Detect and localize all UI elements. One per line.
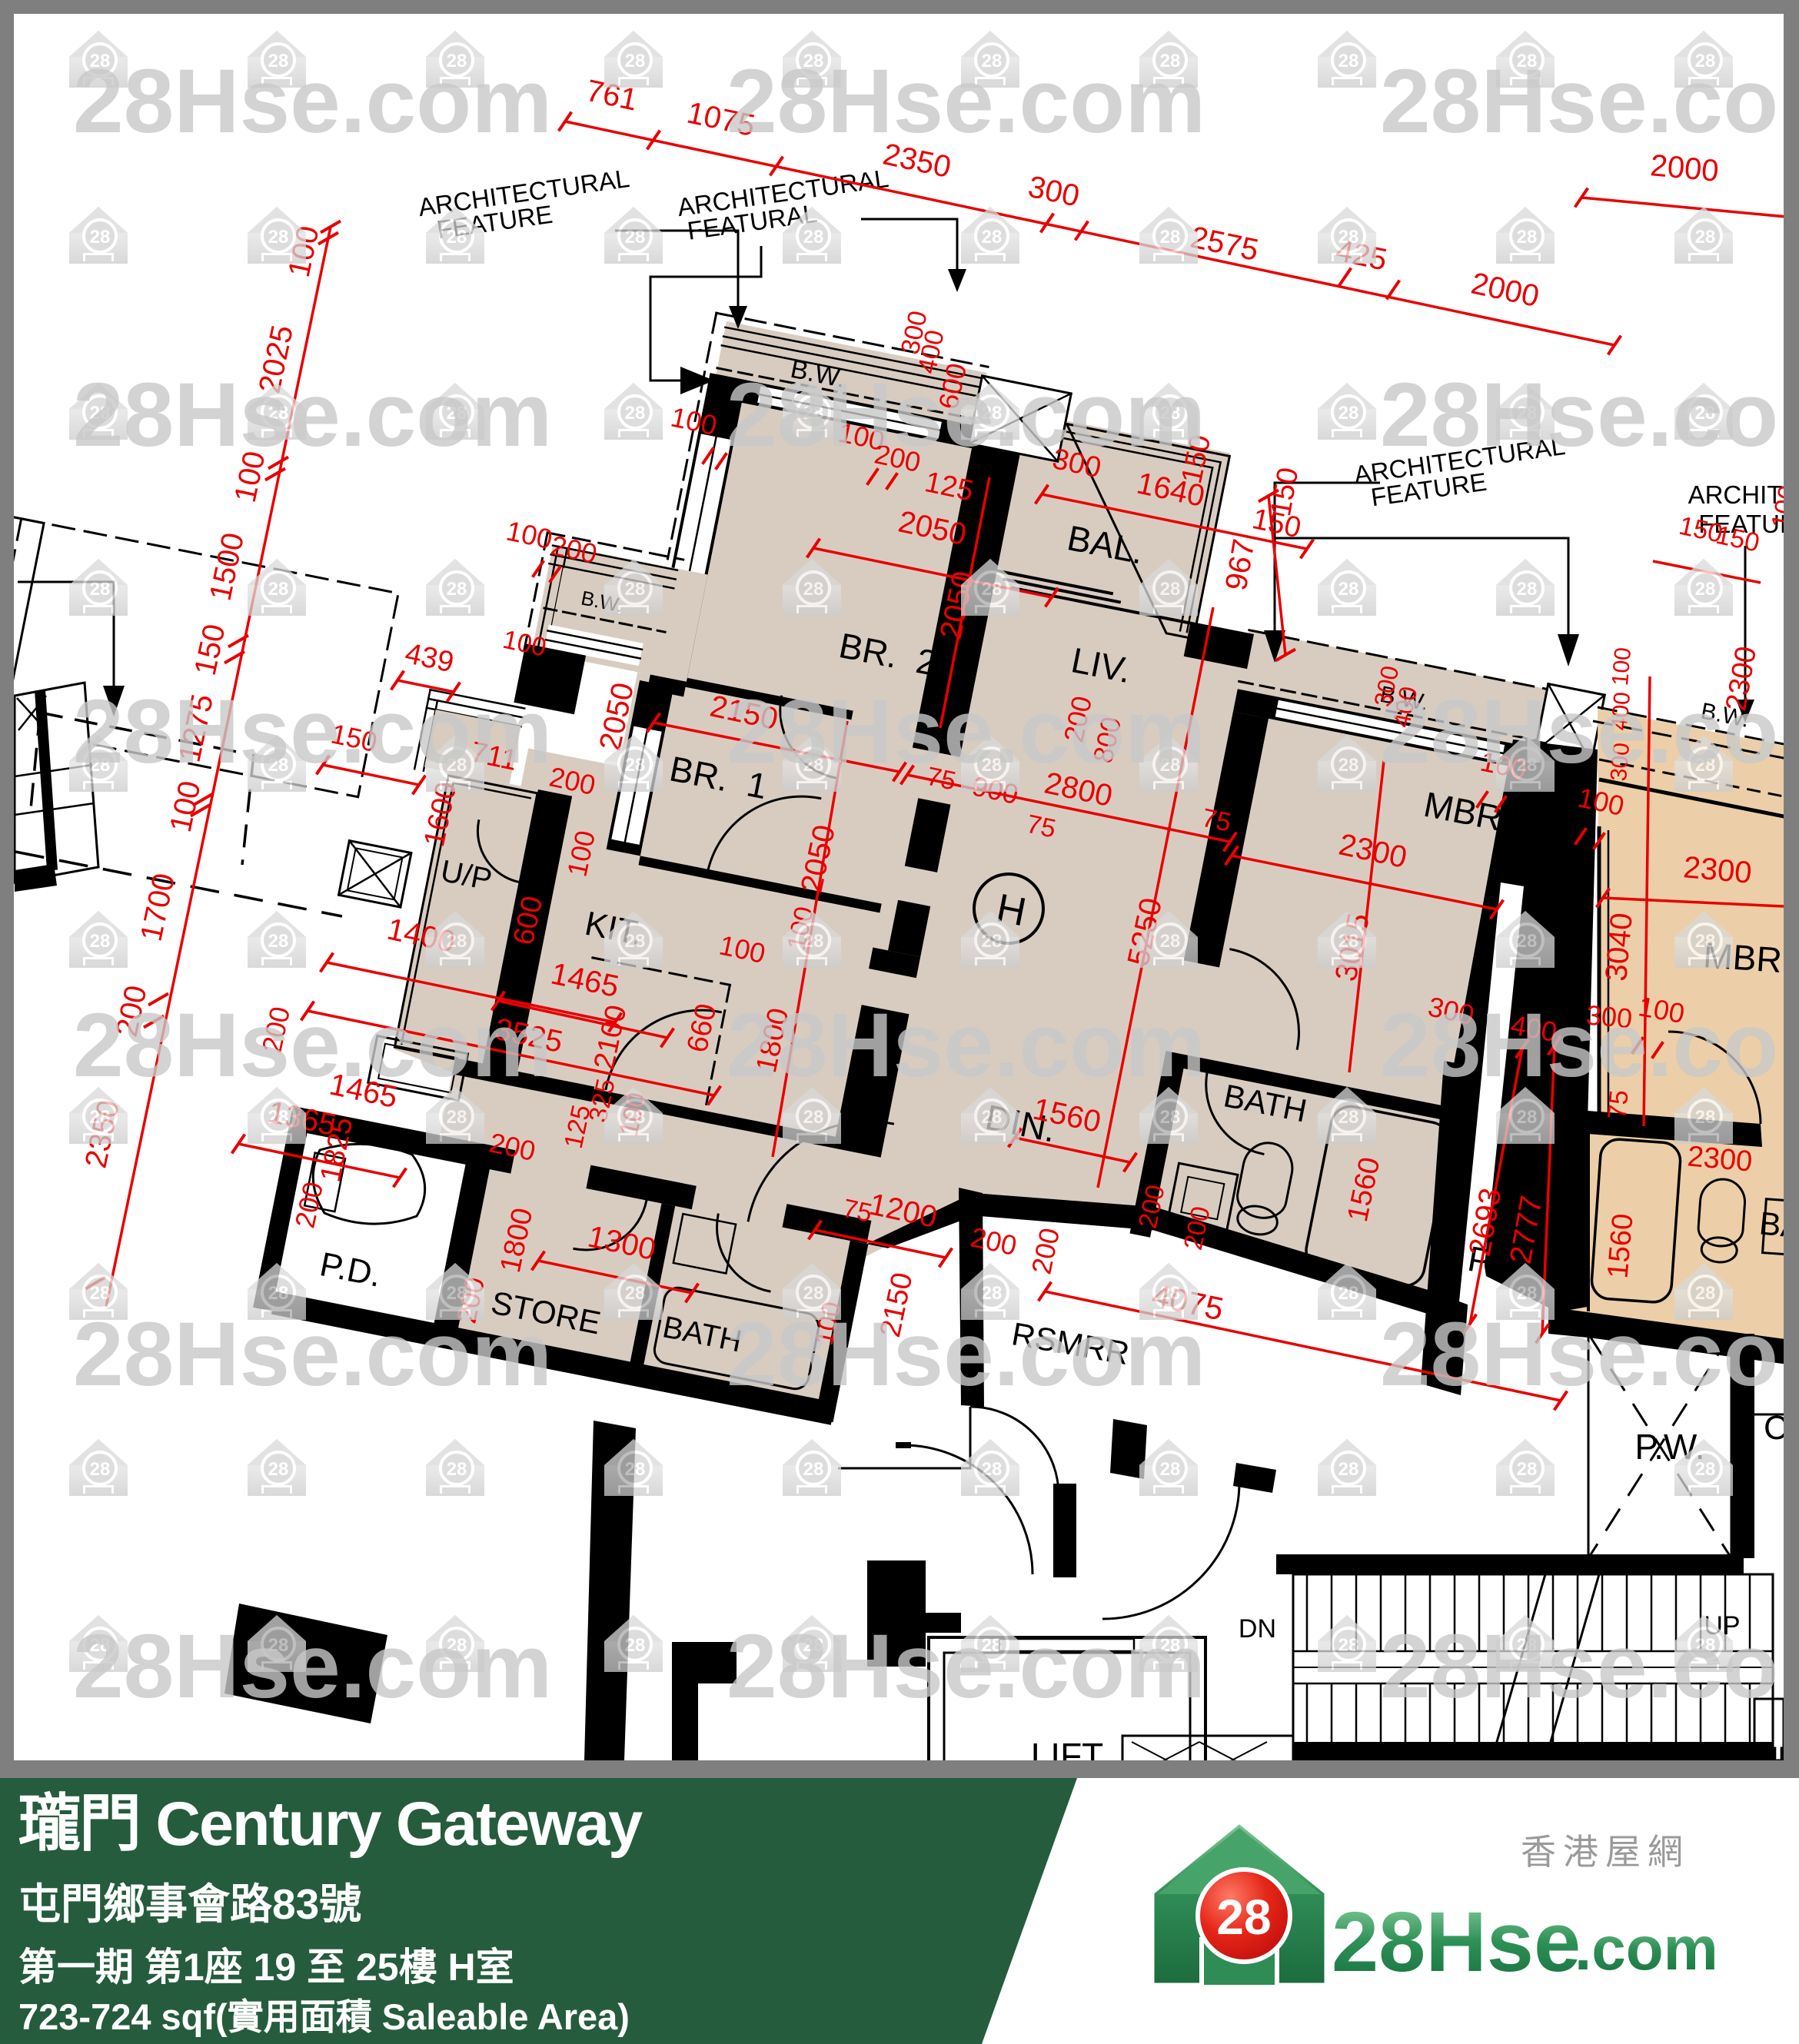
svg-text:28Hse.com: 28Hse.com xyxy=(1380,51,1799,152)
svg-text:75: 75 xyxy=(1024,809,1059,844)
svg-text:.com: .com xyxy=(1575,1914,1718,1983)
svg-text:28Hse.com: 28Hse.com xyxy=(727,364,1205,466)
svg-text:28Hse: 28Hse xyxy=(1332,1895,1581,1989)
svg-text:2300: 2300 xyxy=(1686,1140,1754,1178)
svg-text:香港屋網: 香港屋網 xyxy=(1521,1832,1690,1872)
svg-text:28Hse.com: 28Hse.com xyxy=(73,681,552,783)
svg-text:28Hse.com: 28Hse.com xyxy=(727,995,1205,1096)
svg-text:第一期 第1座 19 至 25樓 H室: 第一期 第1座 19 至 25樓 H室 xyxy=(18,1946,514,1989)
svg-text:28Hse.com: 28Hse.com xyxy=(727,1616,1205,1717)
svg-text:28Hse.com: 28Hse.com xyxy=(1380,995,1799,1096)
svg-text:28Hse.com: 28Hse.com xyxy=(727,51,1205,152)
svg-text:28Hse.com: 28Hse.com xyxy=(73,364,552,466)
svg-text:28Hse.com: 28Hse.com xyxy=(727,681,1205,783)
svg-text:28Hse.com: 28Hse.com xyxy=(73,1304,552,1405)
svg-text:28Hse.com: 28Hse.com xyxy=(73,51,552,152)
svg-text:DN: DN xyxy=(1239,1614,1276,1644)
svg-text:28Hse.com: 28Hse.com xyxy=(73,1616,552,1717)
svg-text:28Hse.com: 28Hse.com xyxy=(1380,364,1799,466)
svg-text:28Hse.com: 28Hse.com xyxy=(727,1304,1205,1405)
svg-text:3040: 3040 xyxy=(1599,912,1639,982)
svg-text:瓏門 Century Gateway: 瓏門 Century Gateway xyxy=(18,1790,643,1859)
svg-text:75: 75 xyxy=(1199,803,1234,838)
svg-text:28Hse.com: 28Hse.com xyxy=(1380,1616,1799,1717)
svg-text:28Hse.com: 28Hse.com xyxy=(73,995,552,1096)
svg-text:28Hse.com: 28Hse.com xyxy=(1380,1304,1799,1405)
svg-text:723-724 sqf(實用面積 Saleable Area: 723-724 sqf(實用面積 Saleable Area) xyxy=(18,1996,630,2037)
svg-text:2300: 2300 xyxy=(1682,850,1753,890)
svg-text:屯門鄉事會路83號: 屯門鄉事會路83號 xyxy=(18,1880,361,1928)
svg-text:1560: 1560 xyxy=(1601,1212,1639,1280)
svg-text:28Hse.com: 28Hse.com xyxy=(1380,681,1799,783)
svg-text:2000: 2000 xyxy=(1649,148,1720,188)
svg-text:28: 28 xyxy=(1216,1889,1271,1945)
